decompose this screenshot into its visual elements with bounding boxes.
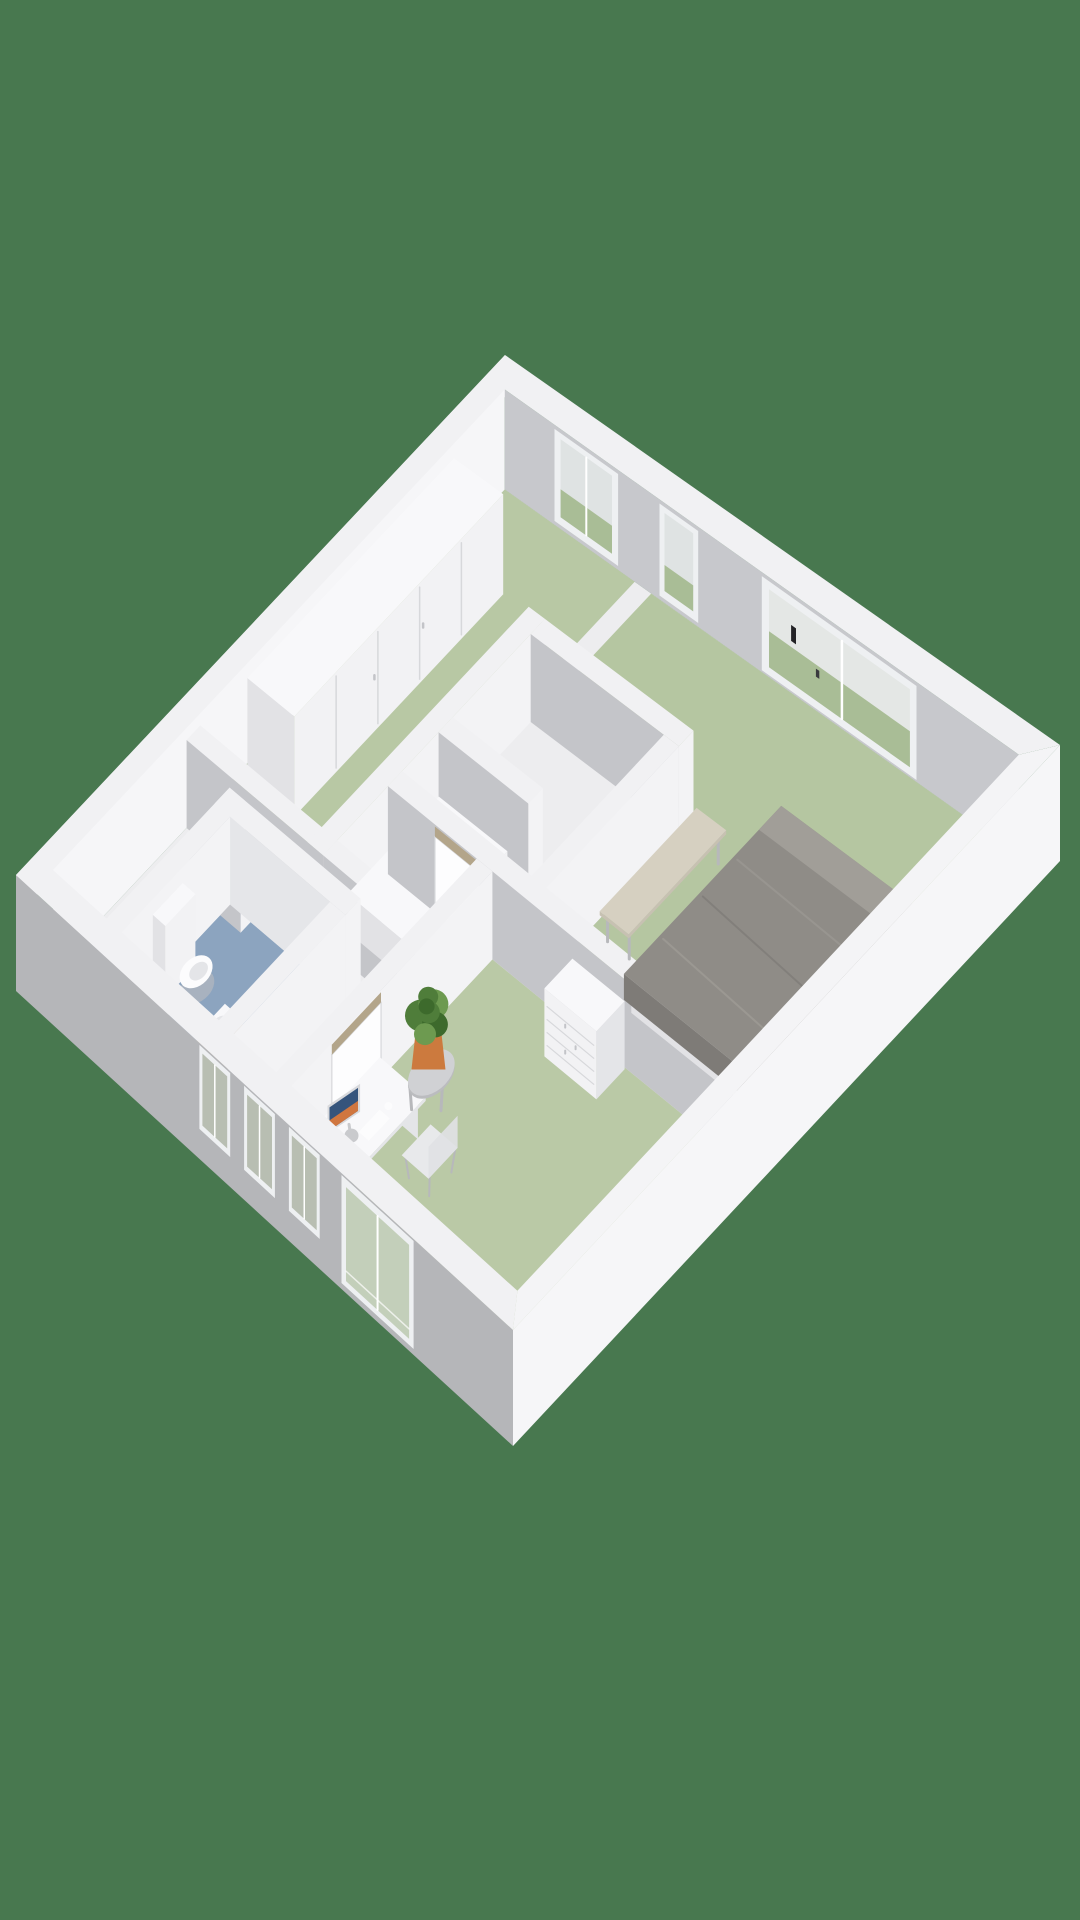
floorplan-viewport: [0, 0, 1080, 1920]
mouse: [384, 1102, 392, 1110]
floorplan-3d-render[interactable]: [0, 0, 1080, 1920]
